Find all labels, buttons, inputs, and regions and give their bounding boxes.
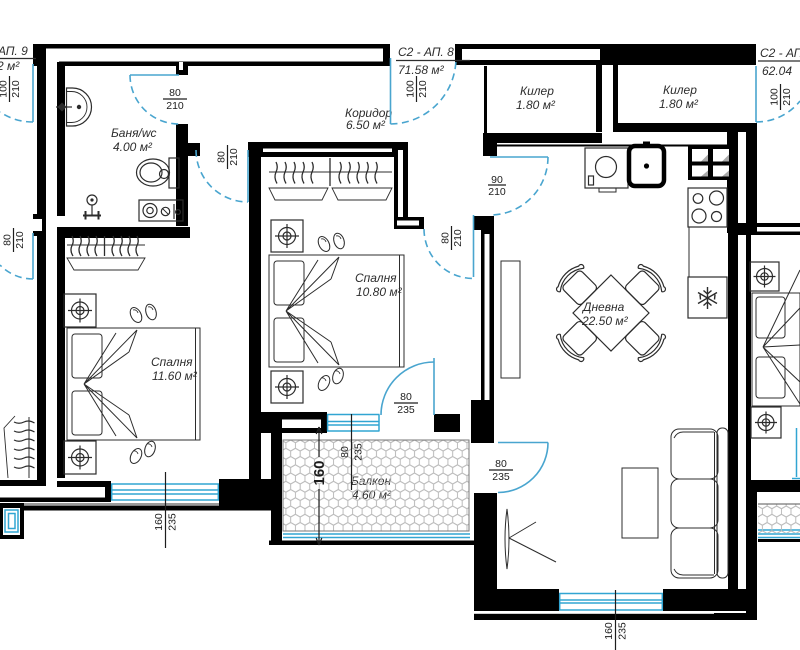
svg-text:62.04: 62.04 [762,64,792,78]
svg-text:235: 235 [617,622,629,640]
svg-text:235: 235 [167,513,179,531]
svg-text:80: 80 [339,446,351,458]
svg-text:235: 235 [397,404,415,416]
svg-text:АП. 9: АП. 9 [0,44,28,58]
svg-text:100: 100 [405,80,417,98]
svg-text:235: 235 [353,443,365,461]
svg-text:80: 80 [2,234,14,246]
svg-text:210: 210 [166,100,184,112]
svg-text:Спалня: Спалня [355,271,397,285]
svg-text:210: 210 [14,231,26,249]
svg-text:210: 210 [488,186,506,198]
svg-text:1.80 м²: 1.80 м² [516,98,556,112]
svg-text:2 м²: 2 м² [0,59,20,73]
svg-text:160: 160 [311,460,328,485]
svg-text:1.80 м²: 1.80 м² [659,97,699,111]
svg-text:100: 100 [769,88,781,106]
svg-text:80: 80 [400,391,412,403]
svg-text:4.00 м²: 4.00 м² [113,140,153,154]
svg-text:10.80 м²: 10.80 м² [356,285,403,299]
svg-text:Килер: Килер [520,84,554,98]
svg-text:11.60 м²: 11.60 м² [152,369,198,383]
svg-text:210: 210 [228,148,240,166]
svg-text:Спалня: Спалня [151,355,193,369]
svg-text:Килер: Килер [663,83,697,97]
svg-text:80: 80 [440,232,452,244]
svg-text:6.50 м²: 6.50 м² [346,118,386,132]
svg-text:71.58 м²: 71.58 м² [398,63,445,77]
svg-text:С2 - АП. 8: С2 - АП. 8 [398,45,454,59]
svg-text:100: 100 [0,80,10,98]
svg-text:210: 210 [452,229,464,247]
svg-text:90: 90 [491,174,503,186]
svg-text:210: 210 [417,80,429,98]
svg-text:Баня/wc: Баня/wc [111,126,157,140]
svg-text:235: 235 [492,471,510,483]
svg-text:160: 160 [603,622,615,640]
svg-text:160: 160 [153,513,165,531]
svg-text:210: 210 [10,80,22,98]
svg-text:80: 80 [495,458,507,470]
svg-text:С2 - АП.: С2 - АП. [760,46,800,60]
svg-text:22.50 м²: 22.50 м² [581,314,629,328]
svg-text:80: 80 [216,151,228,163]
svg-text:Дневна: Дневна [581,300,625,314]
svg-text:210: 210 [781,88,793,106]
svg-text:80: 80 [169,87,181,99]
